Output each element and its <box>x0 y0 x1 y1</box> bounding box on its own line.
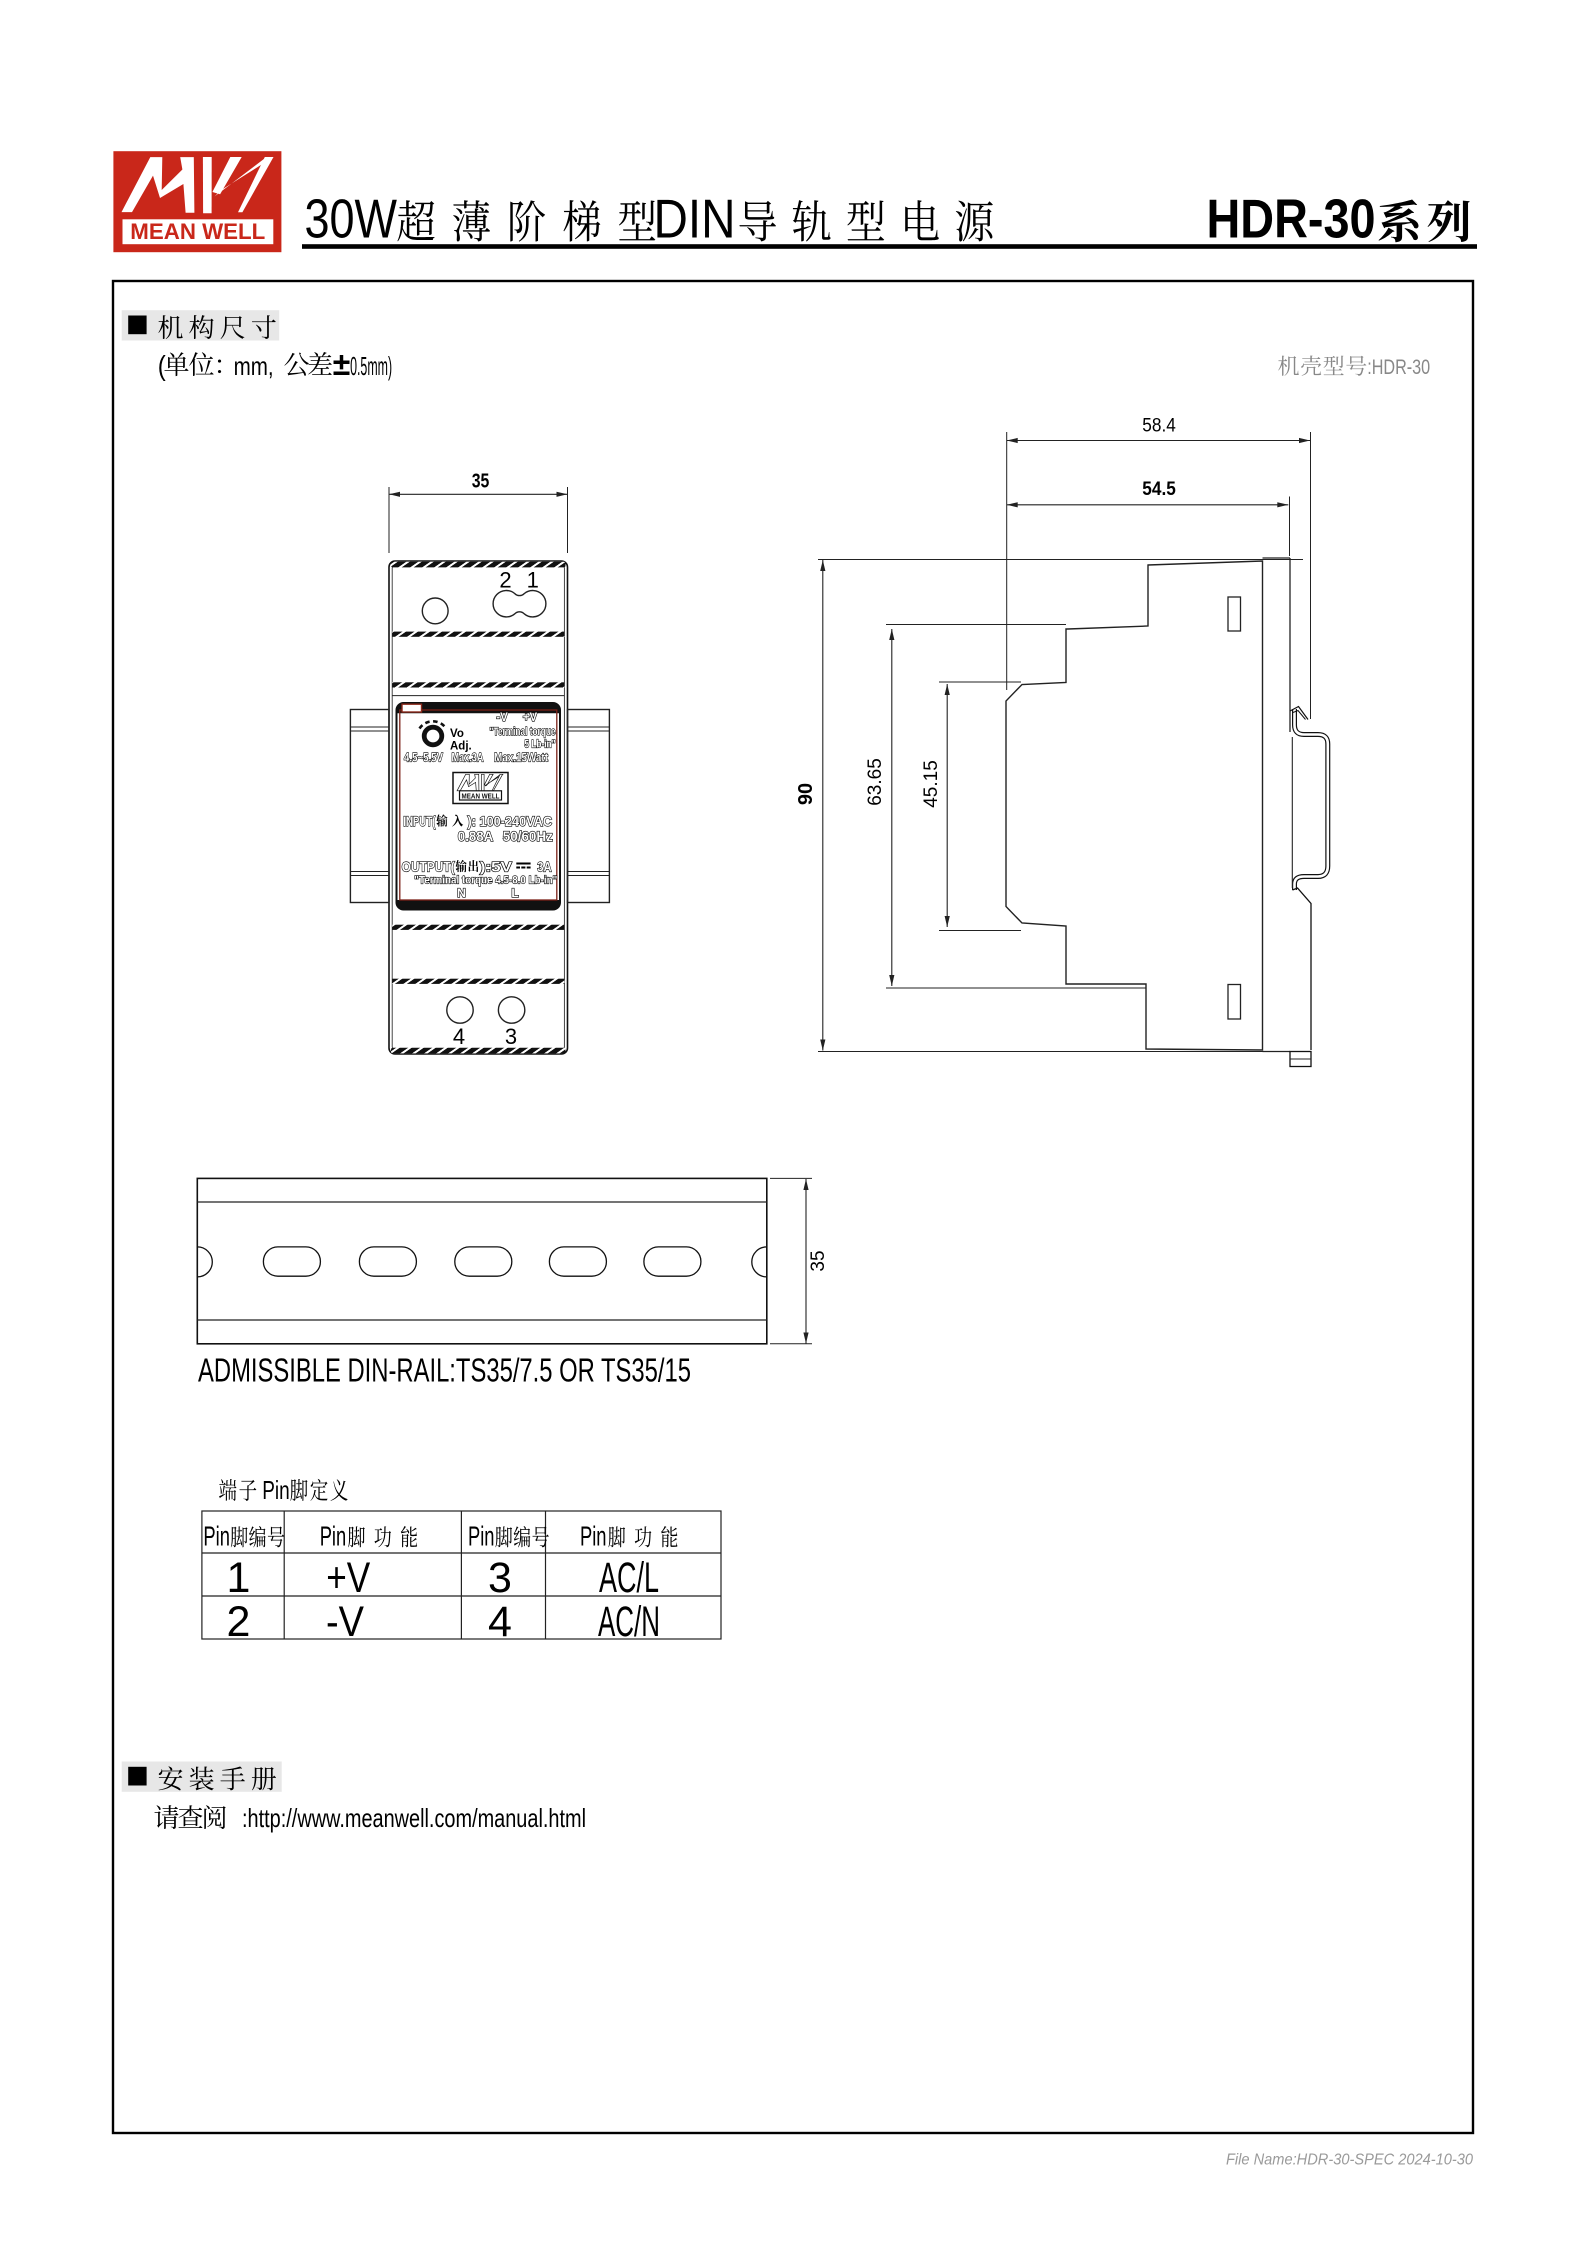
svg-text:Vo: Vo <box>450 728 464 740</box>
svg-text:5 Lb-in": 5 Lb-in" <box>525 739 556 751</box>
svg-text:(: ( <box>158 350 167 381</box>
svg-text::http://www.meanwell.com/manua: :http://www.meanwell.com/manual.html <box>242 1803 586 1833</box>
svg-text:MEAN WELL: MEAN WELL <box>130 219 265 244</box>
svg-text::HDR-30: :HDR-30 <box>1367 356 1430 379</box>
svg-text:0.5mm): 0.5mm) <box>350 351 392 381</box>
svg-text:HDR-30: HDR-30 <box>1207 187 1376 249</box>
svg-text:-V: -V <box>496 712 508 724</box>
svg-text:1: 1 <box>227 1554 251 1602</box>
svg-text:54.5: 54.5 <box>1142 479 1176 500</box>
svg-text:4.5~5.5V: 4.5~5.5V <box>404 751 443 765</box>
svg-text:35: 35 <box>472 470 490 492</box>
svg-text:4: 4 <box>453 1024 465 1049</box>
svg-text:Pin: Pin <box>320 1521 347 1552</box>
svg-text:AC/N: AC/N <box>598 1598 660 1646</box>
svg-text:L: L <box>511 886 518 900</box>
svg-text:Pin: Pin <box>262 1475 290 1505</box>
svg-text:0.88A: 0.88A <box>458 829 494 844</box>
svg-text:MEAN WELL: MEAN WELL <box>462 792 500 801</box>
svg-text:): 100-240VAC: ): 100-240VAC <box>468 814 553 829</box>
svg-text:-V: -V <box>326 1598 364 1646</box>
svg-text:3: 3 <box>488 1554 512 1602</box>
svg-text:2: 2 <box>499 568 511 593</box>
svg-text:DIN: DIN <box>654 187 736 249</box>
svg-text:Pin: Pin <box>203 1521 230 1552</box>
svg-text:3: 3 <box>505 1024 517 1049</box>
svg-text:"Terminal torque: "Terminal torque <box>490 726 556 738</box>
svg-text:Pin: Pin <box>580 1521 607 1552</box>
svg-text:1: 1 <box>527 568 539 593</box>
svg-text:"Terminal torque 4.5-8.0 Lb-in: "Terminal torque 4.5-8.0 Lb-in" <box>414 875 557 887</box>
svg-text:INPUT(: INPUT( <box>403 814 435 829</box>
svg-text:N: N <box>457 886 466 900</box>
svg-text:AC/L: AC/L <box>599 1554 659 1602</box>
svg-text:2: 2 <box>227 1598 251 1646</box>
svg-text:ADMISSIBLE DIN-RAIL:TS35/7.5 O: ADMISSIBLE DIN-RAIL:TS35/7.5 OR TS35/15 <box>198 1352 691 1389</box>
svg-text:+V: +V <box>523 712 538 724</box>
svg-text:±: ± <box>333 346 351 382</box>
svg-text:45.15: 45.15 <box>921 760 942 808</box>
svg-text:Pin: Pin <box>468 1521 495 1552</box>
svg-text:35: 35 <box>808 1250 829 1271</box>
svg-text:OUTPUT(: OUTPUT( <box>402 860 455 875</box>
svg-text:3A: 3A <box>537 860 552 875</box>
svg-text:30W: 30W <box>305 187 398 249</box>
svg-text:58.4: 58.4 <box>1142 416 1176 437</box>
svg-text:+V: +V <box>326 1554 370 1602</box>
svg-text:):5V: ):5V <box>480 860 512 875</box>
svg-text:63.65: 63.65 <box>865 758 886 806</box>
svg-text:50/60Hz: 50/60Hz <box>503 829 553 844</box>
svg-text:Max.15Watt: Max.15Watt <box>494 751 548 765</box>
svg-text:mm,: mm, <box>234 351 274 381</box>
svg-text:90: 90 <box>795 783 817 805</box>
svg-text:4: 4 <box>488 1598 512 1646</box>
svg-text:File Name:HDR-30-SPEC 2024-10: File Name:HDR-30-SPEC 2024-10-30 <box>1226 2152 1473 2169</box>
svg-text:Max.3A: Max.3A <box>452 751 484 765</box>
